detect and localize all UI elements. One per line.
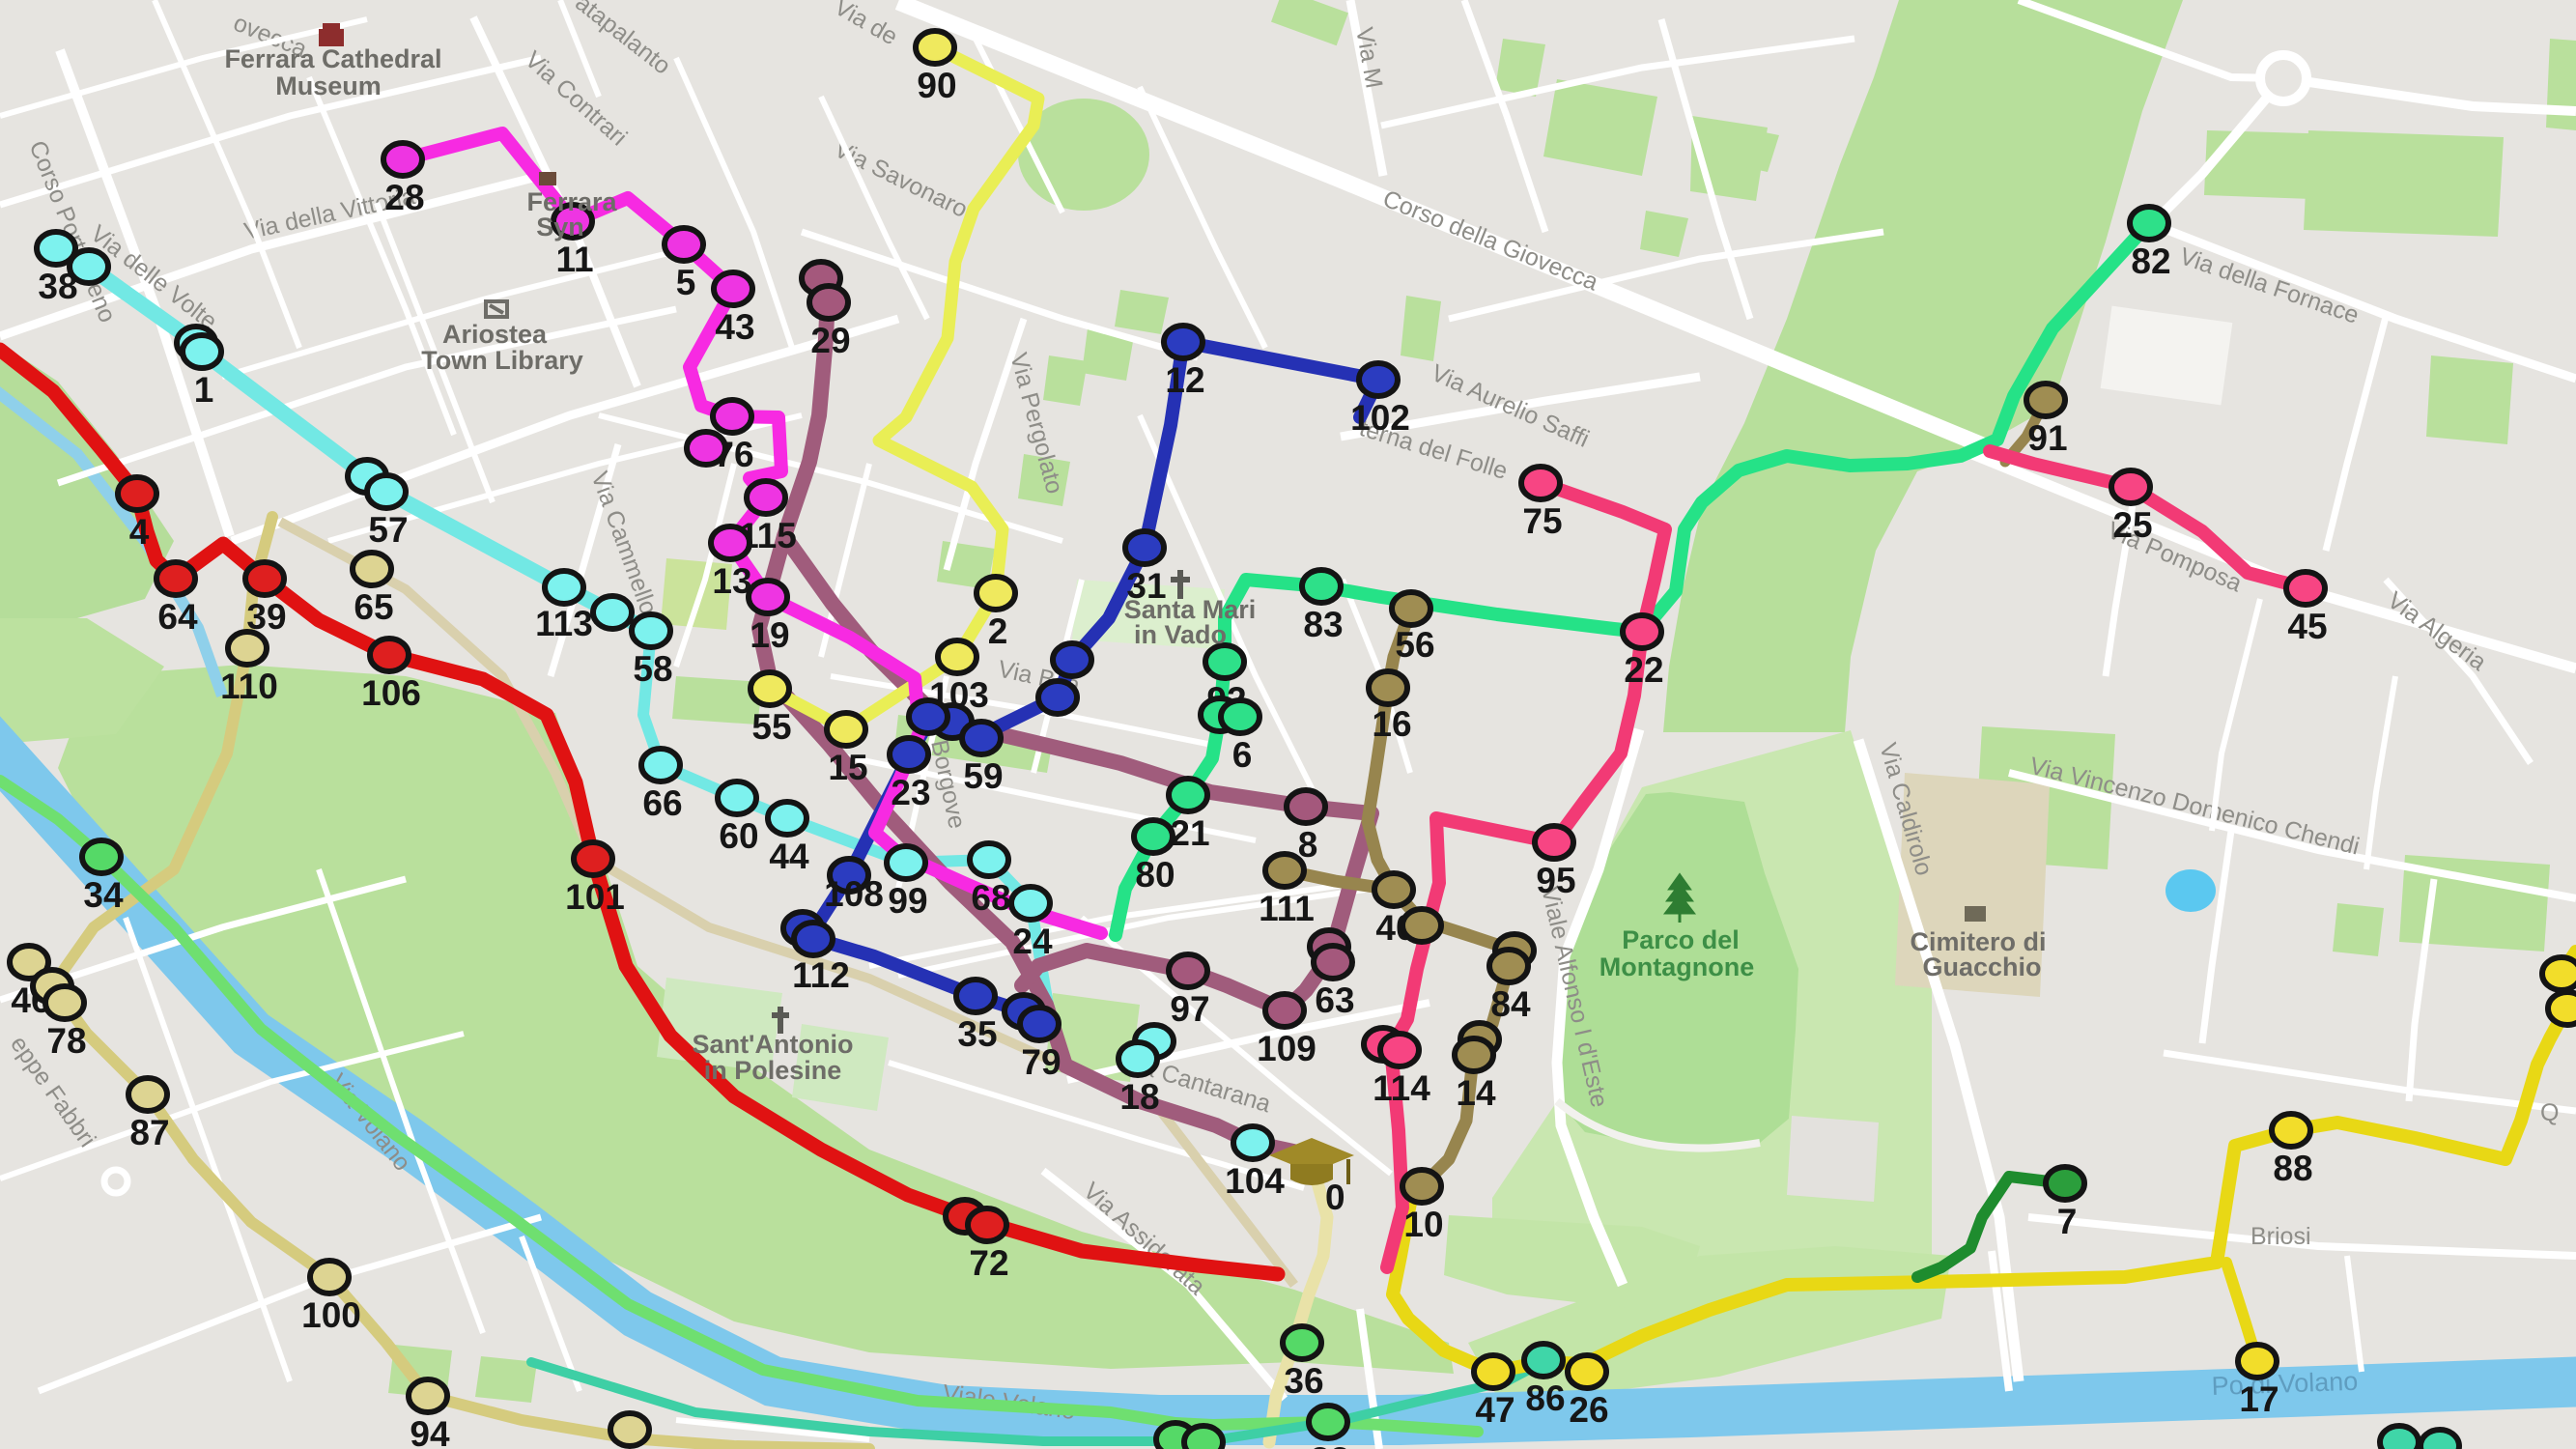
svg-text:82: 82 — [2131, 241, 2170, 281]
svg-text:45: 45 — [2287, 607, 2327, 646]
svg-text:110: 110 — [220, 667, 278, 706]
svg-text:104: 104 — [1225, 1161, 1285, 1201]
svg-text:43: 43 — [715, 307, 754, 347]
svg-text:5: 5 — [676, 263, 696, 302]
svg-text:35: 35 — [957, 1014, 997, 1054]
svg-text:Q: Q — [2540, 1099, 2559, 1126]
svg-text:101: 101 — [565, 877, 625, 917]
svg-text:12: 12 — [1165, 360, 1204, 400]
svg-text:78: 78 — [46, 1021, 86, 1061]
svg-text:23: 23 — [891, 773, 930, 812]
svg-text:22: 22 — [1624, 650, 1663, 690]
svg-text:Guacchio: Guacchio — [1922, 952, 2041, 981]
svg-text:11: 11 — [555, 240, 593, 279]
svg-text:68: 68 — [971, 878, 1010, 918]
svg-text:Po di Volano: Po di Volano — [2211, 1367, 2359, 1401]
svg-text:26: 26 — [1569, 1390, 1608, 1430]
svg-text:in Vado: in Vado — [1134, 620, 1227, 649]
svg-text:109: 109 — [1257, 1029, 1316, 1068]
svg-text:113: 113 — [535, 604, 593, 643]
svg-text:102: 102 — [1350, 398, 1410, 438]
svg-text:33: 33 — [1310, 1440, 1349, 1449]
svg-text:64: 64 — [157, 597, 198, 637]
svg-text:66: 66 — [642, 783, 682, 823]
svg-text:6: 6 — [1232, 735, 1253, 775]
svg-text:80: 80 — [1135, 855, 1175, 895]
svg-text:47: 47 — [1475, 1390, 1514, 1430]
svg-text:60: 60 — [719, 816, 758, 856]
svg-text:87: 87 — [129, 1113, 169, 1152]
svg-text:10: 10 — [1403, 1205, 1443, 1244]
svg-text:55: 55 — [751, 707, 791, 747]
svg-text:Sant'Antonio: Sant'Antonio — [693, 1030, 854, 1059]
svg-text:75: 75 — [1522, 501, 1562, 541]
svg-text:in Polesine: in Polesine — [704, 1056, 842, 1085]
svg-text:112: 112 — [792, 955, 850, 995]
svg-text:111: 111 — [1259, 889, 1315, 928]
svg-text:83: 83 — [1303, 605, 1343, 644]
svg-text:106: 106 — [361, 673, 421, 713]
svg-text:56: 56 — [1395, 625, 1434, 665]
svg-text:Town Library: Town Library — [421, 346, 583, 375]
svg-text:7: 7 — [2057, 1202, 2078, 1241]
svg-text:4: 4 — [129, 512, 150, 552]
svg-text:95: 95 — [1536, 861, 1575, 900]
svg-text:84: 84 — [1490, 984, 1531, 1024]
svg-text:100: 100 — [301, 1295, 361, 1335]
svg-text:17: 17 — [2239, 1379, 2279, 1419]
svg-text:44: 44 — [769, 837, 809, 876]
svg-text:16: 16 — [1372, 704, 1411, 744]
svg-text:63: 63 — [1315, 980, 1354, 1020]
svg-text:99: 99 — [888, 881, 927, 921]
svg-text:Ariostea: Ariostea — [442, 320, 548, 349]
svg-text:1: 1 — [194, 370, 214, 410]
svg-text:Ferrara Cathedral: Ferrara Cathedral — [224, 44, 441, 73]
svg-text:Parco del: Parco del — [1622, 925, 1740, 954]
svg-text:28: 28 — [384, 178, 424, 217]
svg-text:21: 21 — [1170, 813, 1209, 853]
svg-text:0: 0 — [1325, 1178, 1345, 1217]
svg-text:Briosi: Briosi — [2250, 1223, 2311, 1250]
svg-text:88: 88 — [2273, 1149, 2312, 1188]
svg-text:65: 65 — [354, 587, 393, 627]
svg-text:25: 25 — [2112, 505, 2152, 545]
svg-text:79: 79 — [1021, 1042, 1061, 1082]
svg-text:86: 86 — [1525, 1378, 1565, 1418]
svg-text:Museum: Museum — [275, 71, 382, 100]
svg-text:2: 2 — [988, 611, 1008, 651]
svg-text:18: 18 — [1119, 1077, 1159, 1117]
svg-text:97: 97 — [1170, 989, 1209, 1029]
svg-text:114: 114 — [1373, 1068, 1430, 1108]
svg-text:15: 15 — [828, 748, 867, 787]
svg-text:14: 14 — [1456, 1073, 1496, 1113]
svg-text:Syn: Syn — [536, 213, 584, 241]
svg-text:Montagnone: Montagnone — [1599, 952, 1754, 981]
svg-text:59: 59 — [963, 756, 1003, 796]
svg-text:57: 57 — [368, 510, 408, 550]
svg-text:94: 94 — [410, 1414, 450, 1449]
svg-text:108: 108 — [824, 874, 884, 914]
svg-text:29: 29 — [810, 321, 850, 360]
svg-text:91: 91 — [2027, 418, 2067, 458]
svg-text:19: 19 — [750, 615, 789, 655]
svg-text:72: 72 — [969, 1243, 1008, 1283]
svg-text:58: 58 — [633, 649, 672, 689]
svg-text:24: 24 — [1012, 922, 1053, 961]
svg-text:90: 90 — [917, 66, 956, 105]
svg-text:34: 34 — [83, 875, 124, 915]
svg-text:36: 36 — [1284, 1361, 1323, 1401]
